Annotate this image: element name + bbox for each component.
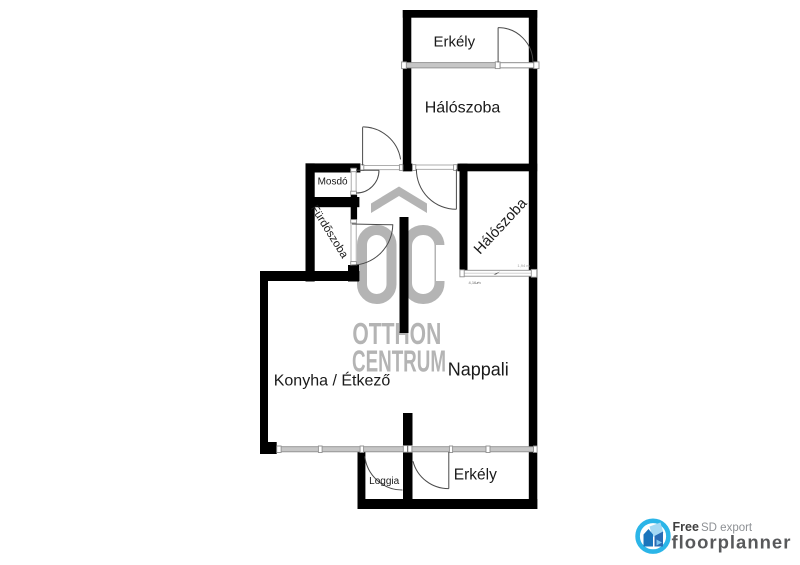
svg-text:Nappali: Nappali bbox=[448, 360, 509, 380]
svg-text:Erkély: Erkély bbox=[454, 466, 497, 483]
svg-text:Loggia: Loggia bbox=[369, 476, 399, 487]
svg-text:1,94 m: 1,94 m bbox=[517, 263, 530, 268]
svg-text:4,16 m: 4,16 m bbox=[469, 280, 482, 285]
svg-text:Mosdó: Mosdó bbox=[318, 177, 348, 188]
svg-text:Konyha / Étkező: Konyha / Étkező bbox=[274, 371, 391, 390]
svg-text:floorplanner: floorplanner bbox=[672, 532, 792, 553]
svg-text:Hálószoba: Hálószoba bbox=[425, 100, 501, 117]
svg-text:Erkély: Erkély bbox=[433, 34, 475, 51]
